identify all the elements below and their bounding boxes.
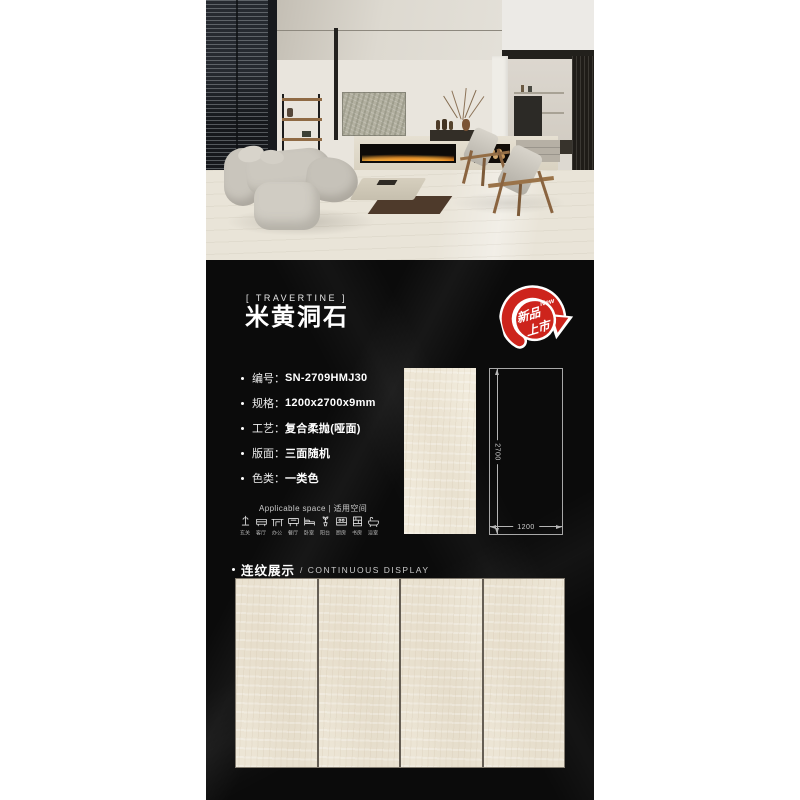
spec-label: 工艺： bbox=[252, 420, 285, 436]
spec-value: 复合柔抛(哑面) bbox=[285, 420, 361, 436]
dining-table-icon bbox=[287, 515, 300, 527]
bullet-dot bbox=[241, 377, 244, 380]
spec-label: 版面： bbox=[252, 445, 285, 461]
arrow-left-icon bbox=[490, 525, 496, 529]
sofa-icon bbox=[255, 515, 268, 527]
spec-row: 工艺： 复合柔抛(哑面) bbox=[241, 420, 361, 436]
wood-shelf bbox=[282, 118, 322, 121]
applicable-space-item: 浴室 bbox=[366, 515, 381, 537]
space-label: 餐厅 bbox=[288, 529, 298, 537]
continuous-display-zh: 连纹展示 bbox=[241, 560, 295, 579]
bullet-dot bbox=[232, 568, 235, 571]
bullet-dot bbox=[241, 477, 244, 480]
dimension-diagram: 2700 1200 bbox=[489, 368, 563, 535]
width-dimension-label: 1200 bbox=[513, 524, 539, 531]
lounge-chair bbox=[488, 146, 560, 216]
spec-value: 三面随机 bbox=[285, 445, 330, 461]
continuous-tile bbox=[401, 579, 482, 767]
fire-flames bbox=[362, 152, 454, 161]
arrow-up-icon bbox=[495, 369, 499, 375]
ceiling-track-light bbox=[276, 30, 526, 31]
tile-sample-image bbox=[404, 368, 476, 534]
spec-label: 色类： bbox=[252, 470, 285, 486]
height-dimension-label: 2700 bbox=[493, 440, 502, 464]
space-label: 浴室 bbox=[368, 529, 378, 537]
kitchen-shelf bbox=[514, 92, 564, 94]
space-label: 办公 bbox=[272, 529, 282, 537]
shelf-object bbox=[302, 131, 311, 137]
continuous-display-en: / CONTINUOUS DISPLAY bbox=[300, 565, 430, 575]
product-title: 米黄洞石 bbox=[245, 304, 349, 332]
recessed-ceiling bbox=[502, 0, 594, 54]
sofa-front-ottoman bbox=[254, 182, 320, 230]
bookshelf-icon bbox=[351, 515, 364, 527]
applicable-space-item: 阳台 bbox=[318, 515, 333, 537]
table-tray bbox=[377, 180, 398, 185]
wall-art bbox=[342, 92, 406, 136]
shelf-bottle bbox=[521, 85, 524, 92]
dry-branches bbox=[444, 86, 488, 120]
applicable-space-item: 客厅 bbox=[254, 515, 269, 537]
wood-shelf bbox=[282, 98, 322, 101]
coat-rack-icon bbox=[239, 515, 252, 527]
bullet-dot bbox=[241, 452, 244, 455]
sculpture bbox=[436, 120, 440, 130]
space-label: 卧室 bbox=[304, 529, 314, 537]
spec-label: 规格： bbox=[252, 395, 285, 411]
bed-icon bbox=[303, 515, 316, 527]
continuous-display-heading: 连纹展示 / CONTINUOUS DISPLAY bbox=[232, 560, 430, 579]
stove-icon bbox=[335, 515, 348, 527]
new-arrival-badge: 新品 New 上市 bbox=[492, 270, 584, 362]
bathtub-icon bbox=[367, 515, 380, 527]
applicable-space-item: 办公 bbox=[270, 515, 285, 537]
space-label: 阳台 bbox=[320, 529, 330, 537]
continuous-tile bbox=[236, 579, 317, 767]
desk-icon bbox=[271, 515, 284, 527]
spec-label: 编号： bbox=[252, 370, 285, 386]
spec-row: 编号： SN-2709HMJ30 bbox=[241, 370, 367, 386]
fireplace-opening bbox=[360, 144, 456, 163]
spec-value: 一类色 bbox=[285, 470, 319, 486]
space-label: 书房 bbox=[352, 529, 362, 537]
poster-column: [ TRAVERTINE ] 米黄洞石 新品 New 上市 编号： SN-270… bbox=[206, 0, 594, 800]
bullet-dot bbox=[241, 402, 244, 405]
stove-pipe bbox=[334, 28, 338, 140]
applicable-space-item: 玄关 bbox=[238, 515, 253, 537]
applicable-space-item: 卧室 bbox=[302, 515, 317, 537]
spec-row: 规格： 1200x2700x9mm bbox=[241, 395, 376, 411]
continuous-tile bbox=[484, 579, 565, 767]
plant-icon bbox=[319, 515, 332, 527]
space-label: 厨房 bbox=[336, 529, 346, 537]
shelf-bottle bbox=[528, 86, 532, 92]
category-tag: [ TRAVERTINE ] bbox=[246, 293, 347, 303]
dark-doorway bbox=[514, 96, 542, 140]
space-label: 客厅 bbox=[256, 529, 266, 537]
applicable-space-item: 餐厅 bbox=[286, 515, 301, 537]
space-label: 玄关 bbox=[240, 529, 250, 537]
continuous-tile-strip bbox=[235, 578, 565, 768]
spec-value: 1200x2700x9mm bbox=[285, 397, 376, 409]
applicable-space-heading: Applicable space | 适用空间 bbox=[259, 503, 367, 514]
slatted-screen bbox=[572, 56, 594, 174]
applicable-space-item: 厨房 bbox=[334, 515, 349, 537]
continuous-tile bbox=[319, 579, 400, 767]
spec-row: 色类： 一类色 bbox=[241, 470, 319, 486]
sculpture bbox=[442, 119, 447, 130]
arrow-right-icon bbox=[556, 525, 562, 529]
hero-photo bbox=[206, 0, 594, 260]
shelf-object bbox=[287, 108, 293, 117]
sculpture bbox=[449, 121, 453, 130]
spec-row: 版面： 三面随机 bbox=[241, 445, 330, 461]
wood-shelf bbox=[282, 138, 322, 141]
applicable-space-item: 书房 bbox=[350, 515, 365, 537]
spec-value: SN-2709HMJ30 bbox=[285, 372, 367, 384]
product-info-panel: [ TRAVERTINE ] 米黄洞石 新品 New 上市 编号： SN-270… bbox=[206, 260, 594, 800]
bullet-dot bbox=[241, 427, 244, 430]
applicable-space-icons: 玄关 客厅 办公 餐厅 卧室 阳台 bbox=[238, 515, 381, 537]
